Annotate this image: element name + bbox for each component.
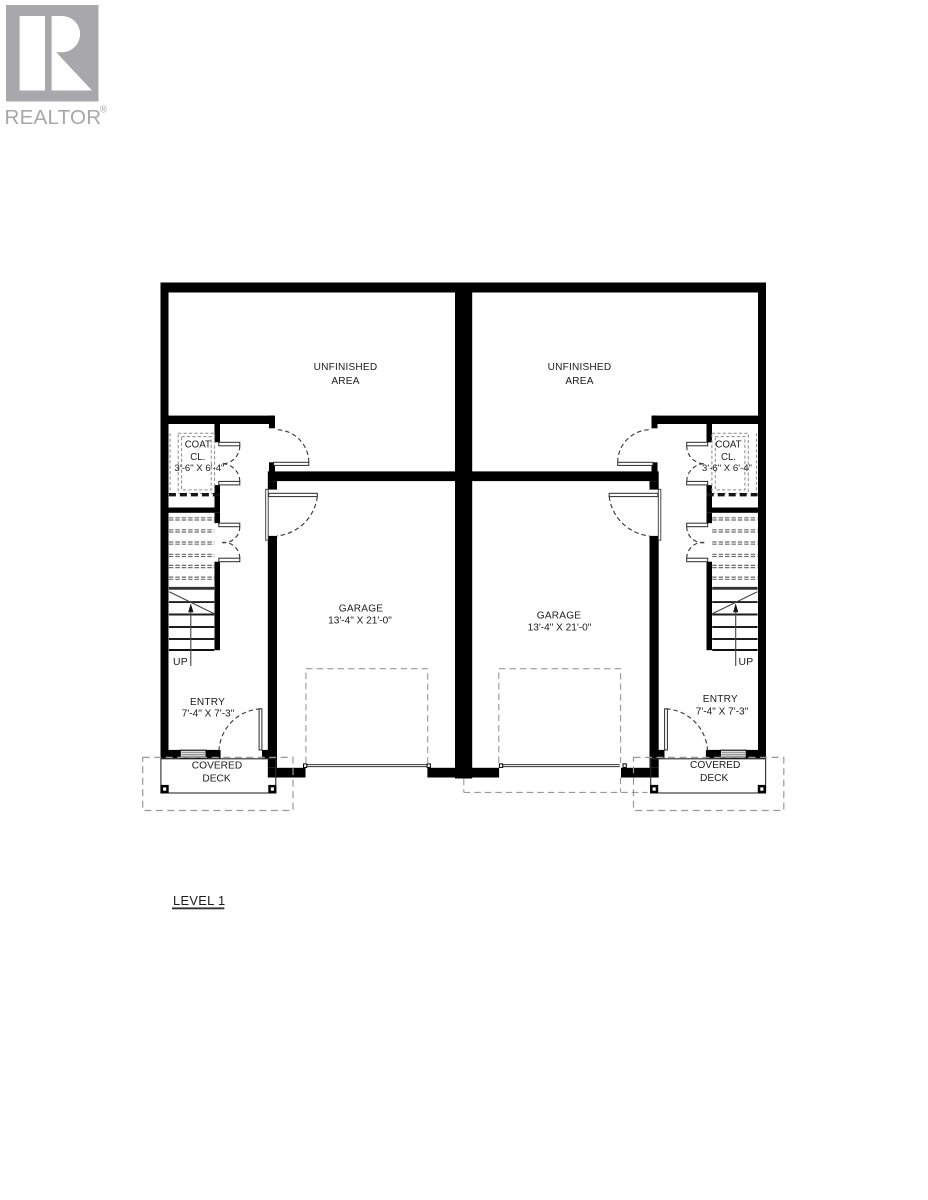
- svg-text:CL.: CL.: [721, 452, 736, 463]
- svg-text:CL.: CL.: [190, 452, 205, 463]
- svg-text:3'-6" X 6'-4": 3'-6" X 6'-4": [702, 463, 752, 474]
- svg-text:ENTRY: ENTRY: [703, 694, 738, 705]
- svg-text:REALTOR: REALTOR: [5, 106, 102, 129]
- svg-text:DECK: DECK: [700, 773, 729, 784]
- svg-text:GARAGE: GARAGE: [537, 611, 581, 622]
- svg-text:UNFINISHED: UNFINISHED: [548, 362, 612, 373]
- svg-text:7'-4" X 7'-3": 7'-4" X 7'-3": [182, 708, 235, 719]
- svg-text:®: ®: [100, 105, 108, 116]
- svg-text:UP: UP: [173, 657, 188, 668]
- svg-text:COAT: COAT: [715, 440, 741, 451]
- svg-text:UP: UP: [738, 657, 753, 668]
- svg-text:AREA: AREA: [565, 376, 593, 387]
- svg-text:AREA: AREA: [331, 376, 359, 387]
- svg-text:13'-4" X 21'-0": 13'-4" X 21'-0": [528, 622, 592, 633]
- svg-text:13'-4" X 21'-0": 13'-4" X 21'-0": [328, 616, 392, 627]
- svg-text:DECK: DECK: [202, 773, 231, 784]
- svg-text:ENTRY: ENTRY: [190, 697, 225, 708]
- svg-text:COAT: COAT: [185, 440, 211, 451]
- svg-text:COVERED: COVERED: [192, 760, 242, 771]
- svg-text:GARAGE: GARAGE: [339, 604, 383, 615]
- svg-text:3'-6" X 6'-4": 3'-6" X 6'-4": [175, 463, 225, 474]
- svg-text:7'-4" X 7'-3": 7'-4" X 7'-3": [696, 706, 749, 717]
- svg-text:LEVEL 1: LEVEL 1: [173, 893, 226, 908]
- svg-text:UNFINISHED: UNFINISHED: [314, 362, 378, 373]
- svg-text:COVERED: COVERED: [690, 760, 740, 771]
